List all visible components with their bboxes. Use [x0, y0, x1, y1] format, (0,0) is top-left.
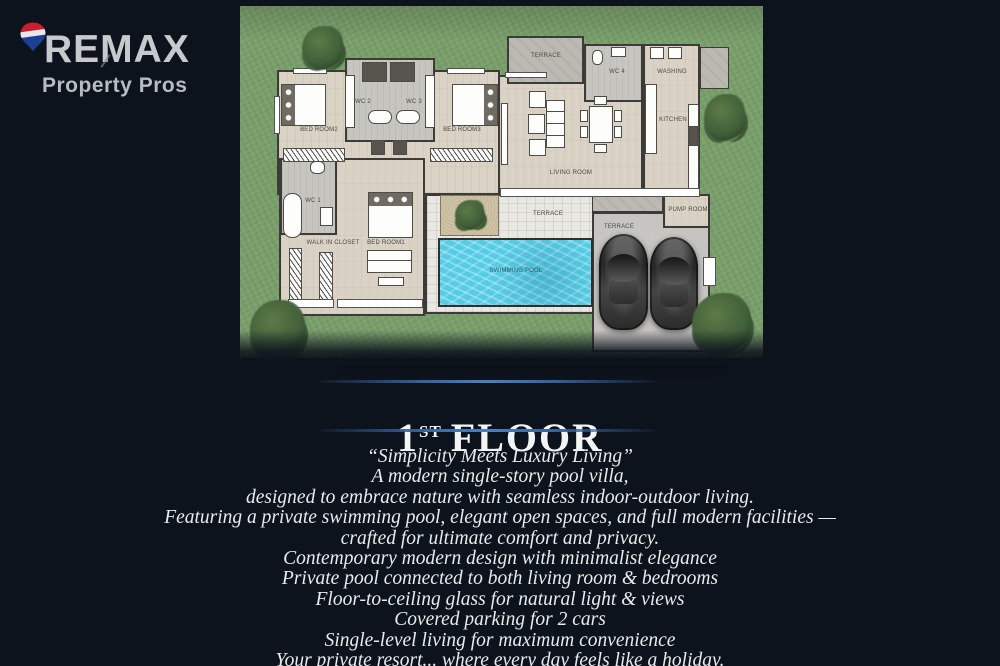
room-label-bedroom3: BED ROOM3	[443, 127, 481, 133]
room-label-bedroom1: BED ROOM1	[367, 240, 405, 246]
room-label-living-room: LIVING ROOM	[550, 170, 592, 176]
title-rule-top	[318, 380, 656, 383]
wc4-toilet	[592, 50, 603, 65]
kitchen-counter-left	[645, 84, 657, 154]
page: REMAX Property Pros	[0, 0, 1000, 666]
wc1-toilet	[310, 161, 325, 174]
bathtub	[283, 193, 302, 238]
side-gate	[703, 257, 716, 286]
side-walkway	[592, 195, 663, 212]
dining-chair-left1	[580, 110, 588, 122]
car-2	[650, 237, 698, 330]
tv-console	[501, 103, 508, 165]
room-label-walk-in-closet: WALK IN CLOSET	[307, 240, 360, 246]
wc4-sink	[611, 47, 626, 57]
room-label-swimming-pool: SWIMMING POOL	[490, 268, 543, 274]
dining-table	[589, 106, 613, 143]
floor-plan: TERRACE WC 4 WASHING KITCHEN LIVING ROOM…	[240, 0, 763, 366]
entry-porch	[700, 47, 729, 89]
window-living-top	[505, 72, 547, 78]
stove	[689, 126, 698, 146]
dining-chair-right2	[614, 126, 622, 138]
description-line: A modern single-story pool villa,	[0, 467, 1000, 487]
window-bedroom2-left	[274, 96, 280, 134]
bed-pillows-bedroom3	[484, 85, 497, 125]
window-bedroom1-bottom	[337, 299, 423, 308]
property-description: “Simplicity Meets Luxury Living” A moder…	[0, 447, 1000, 666]
wc3-shower	[393, 140, 407, 155]
description-line: Featuring a private swimming pool, elega…	[0, 508, 1000, 528]
window-bedroom3-top	[447, 68, 485, 74]
description-line: designed to embrace nature with seamless…	[0, 488, 1000, 508]
bed-pillows-bedroom1	[369, 193, 412, 206]
bed-pillows-bedroom2	[282, 85, 295, 125]
room-label-washing: WASHING	[657, 69, 687, 75]
wc3-tub	[396, 110, 420, 124]
wc2-vanity	[362, 62, 387, 82]
description-line: Single-level living for maximum convenie…	[0, 631, 1000, 651]
dining-chair-bottom	[594, 144, 607, 153]
room-label-pump-room: PUMP ROOM	[668, 207, 707, 213]
room-label-terrace-pool: TERRACE	[533, 211, 563, 217]
brand-name: REMAX	[44, 28, 190, 72]
room-label-terrace-parking: TERRACE	[604, 224, 634, 230]
room-label-wc1: WC 1	[305, 198, 321, 204]
walkin-closet-shelf-left	[289, 248, 302, 303]
closet-panel-right	[425, 75, 435, 128]
living-armchair-middle	[528, 114, 545, 134]
room-label-kitchen: KITCHEN	[659, 117, 687, 123]
wc2-shower	[371, 140, 385, 155]
wardrobe-bedroom2	[283, 148, 345, 162]
room-label-wc4: WC 4	[609, 69, 625, 75]
closet-panel-left	[345, 75, 355, 128]
description-line: Contemporary modern design with minimali…	[0, 549, 1000, 569]
dining-chair-right1	[614, 110, 622, 122]
room-label-terrace-top: TERRACE	[531, 53, 561, 59]
window-living-pool-side	[500, 188, 700, 197]
dining-chair-left2	[580, 126, 588, 138]
washing-machine-2	[668, 47, 682, 59]
wc2-tub	[368, 110, 392, 124]
kitchen-counter-right	[688, 104, 699, 190]
room-label-wc2: WC 2	[355, 99, 371, 105]
description-line: “Simplicity Meets Luxury Living”	[0, 447, 1000, 467]
description-line: Your private resort... where every day f…	[0, 651, 1000, 666]
living-armchair-bottom	[529, 139, 546, 156]
tree-right	[704, 94, 746, 142]
title-rule-bottom	[318, 429, 656, 432]
description-line: Floor-to-ceiling glass for natural light…	[0, 590, 1000, 610]
wc1-sink	[320, 207, 333, 226]
sofa-bedroom1	[367, 250, 412, 273]
wc3-vanity	[390, 62, 415, 82]
tree-top-left	[302, 26, 344, 70]
description-line: crafted for ultimate comfort and privacy…	[0, 529, 1000, 549]
table-bedroom1	[378, 277, 404, 286]
washing-machine-1	[650, 47, 664, 59]
wardrobe-bedroom3	[430, 148, 493, 162]
plan-bottom-fade	[240, 330, 763, 366]
walkin-closet-shelf-right	[319, 252, 333, 304]
brand-tagline: Property Pros	[42, 74, 187, 98]
car-1	[599, 234, 648, 330]
description-line: Private pool connected to both living ro…	[0, 569, 1000, 589]
living-sofa	[546, 100, 565, 148]
description-line: Covered parking for 2 cars	[0, 610, 1000, 630]
room-label-wc3: WC 3	[406, 99, 422, 105]
tree-planter	[455, 200, 485, 230]
remax-logo: REMAX Property Pros	[14, 14, 224, 109]
living-armchair-top	[529, 91, 546, 108]
dining-chair-top	[594, 96, 607, 105]
room-label-bedroom2: BED ROOM2	[300, 127, 338, 133]
